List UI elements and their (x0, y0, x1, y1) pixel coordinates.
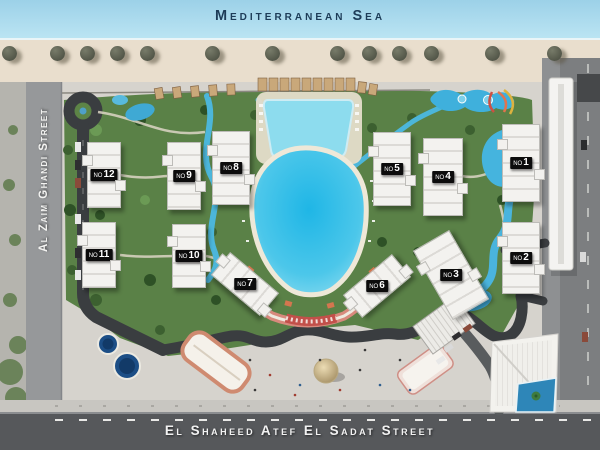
building-no-2: NO2 (502, 222, 540, 294)
building-no-1: NO1 (502, 124, 540, 202)
building-no-10: NO10 (172, 224, 206, 288)
building-label: NO7 (234, 278, 256, 290)
building-label: NO4 (432, 171, 454, 183)
building-label: NO6 (366, 280, 388, 292)
building-label: NO5 (381, 163, 403, 175)
building-no-11: NO11 (82, 222, 116, 288)
building-no-4: NO4 (423, 138, 463, 216)
building-label: NO8 (220, 162, 242, 174)
building-label: NO2 (510, 252, 532, 264)
building-label: NO3 (440, 269, 462, 281)
building-label: NO11 (86, 249, 113, 261)
bottom-street-label: El Shaheed Atef El Sadat Street (0, 423, 600, 438)
building-label: NO1 (510, 157, 532, 169)
building-no-3: NO3 (413, 230, 489, 320)
building-no-5: NO5 (373, 132, 411, 206)
buildings-layer: NO1 NO2 NO3 NO4 NO5 NO6 NO7 NO8 NO9 NO10… (0, 0, 600, 450)
building-label: NO9 (173, 170, 195, 182)
sea-label: Mediterranean Sea (0, 8, 600, 24)
building-no-6: NO6 (343, 254, 411, 318)
building-no-7: NO7 (211, 252, 279, 316)
master-plan: NO1 NO2 NO3 NO4 NO5 NO6 NO7 NO8 NO9 NO10… (0, 0, 600, 450)
building-no-12: NO12 (87, 142, 121, 208)
building-label: NO12 (90, 169, 117, 181)
building-no-8: NO8 (212, 131, 250, 205)
building-no-9: NO9 (167, 142, 201, 210)
building-label: NO10 (175, 250, 202, 262)
